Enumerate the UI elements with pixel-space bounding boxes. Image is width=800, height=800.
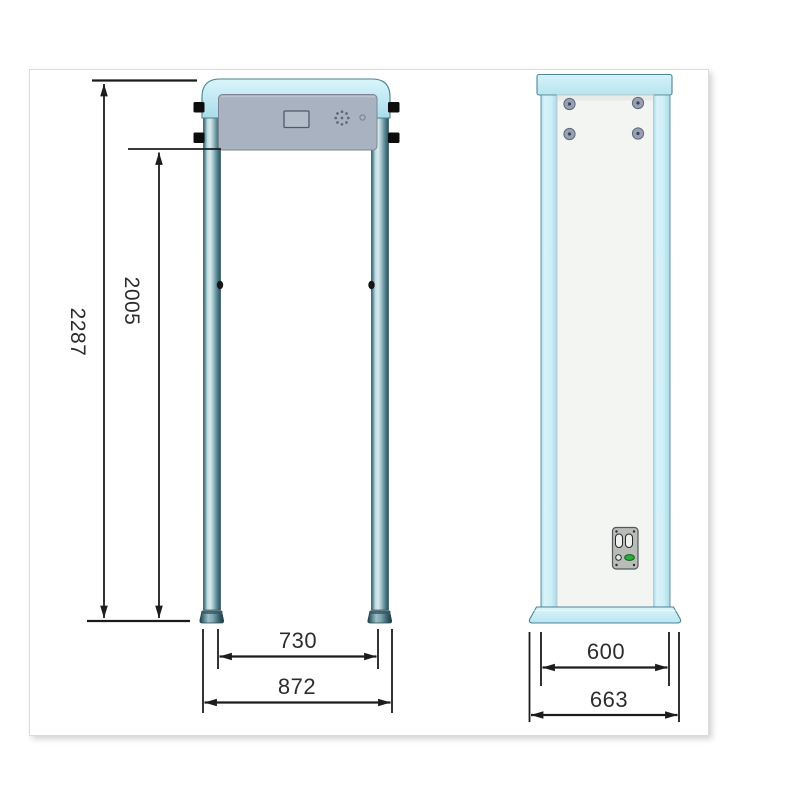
front-right-foot-band bbox=[371, 611, 391, 614]
power-socket bbox=[626, 534, 633, 548]
ir-sensor-right bbox=[368, 281, 374, 289]
front-view bbox=[194, 79, 400, 623]
bracket-right-top bbox=[388, 102, 400, 113]
dim-label-base-depth: 663 bbox=[590, 687, 628, 712]
ir-sensor-left bbox=[217, 281, 223, 289]
bolt bbox=[632, 128, 643, 139]
front-right-column bbox=[372, 96, 389, 610]
power-panel-plate bbox=[613, 528, 639, 570]
bolt bbox=[632, 97, 643, 108]
display-window bbox=[284, 111, 309, 128]
dim-label-inner-width: 730 bbox=[279, 628, 317, 653]
power-socket-panel bbox=[613, 528, 639, 570]
bracket-left-bottom bbox=[194, 133, 205, 144]
side-rear-edge bbox=[654, 95, 671, 607]
side-top-cap bbox=[537, 75, 672, 96]
dim-label-overall-height: 2287 bbox=[66, 308, 89, 357]
front-left-column bbox=[204, 96, 221, 610]
screenshot-canvas: 2287 2005 730 872 600 663 bbox=[0, 0, 800, 800]
speaker-grille-icon bbox=[334, 110, 349, 125]
dim-label-inner-height: 2005 bbox=[120, 277, 143, 326]
bolt bbox=[564, 128, 575, 139]
bracket-left-top bbox=[194, 102, 205, 113]
power-led bbox=[625, 555, 635, 561]
dim-label-body-depth: 600 bbox=[587, 639, 625, 664]
bracket-right-bottom bbox=[388, 133, 400, 144]
bolt bbox=[564, 98, 575, 109]
power-switch bbox=[616, 555, 622, 561]
dimension-drawing: 2287 2005 730 872 600 663 bbox=[0, 0, 800, 800]
power-socket bbox=[616, 534, 623, 548]
front-left-foot-band bbox=[203, 611, 223, 614]
dim-label-overall-width: 872 bbox=[278, 674, 316, 699]
side-front-edge bbox=[541, 95, 557, 607]
side-base bbox=[529, 607, 680, 623]
side-view bbox=[529, 75, 680, 624]
side-panel bbox=[557, 95, 654, 607]
